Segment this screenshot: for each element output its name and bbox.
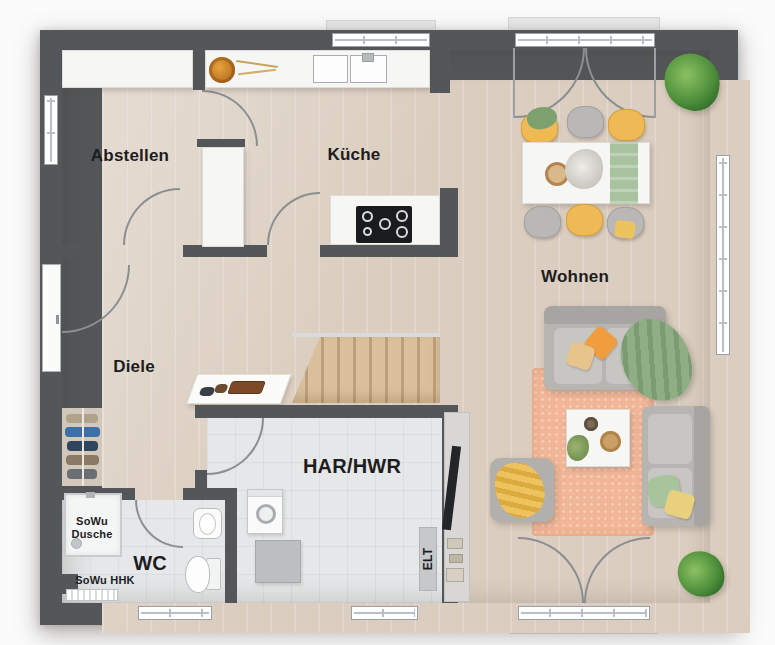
fruit-bowl	[209, 57, 235, 83]
stair-rail	[292, 333, 440, 337]
door-leaf	[654, 48, 656, 118]
wall-wc-top-right	[183, 488, 237, 500]
washer-door	[256, 504, 276, 524]
towel-radiator	[66, 589, 118, 601]
burner	[362, 211, 373, 222]
cooktop	[356, 206, 412, 243]
books	[447, 538, 463, 549]
annotation-electrical: ELT	[421, 548, 435, 570]
wall-kitchen-peninsula	[320, 245, 458, 257]
room-label-diele: Diele	[113, 357, 155, 377]
faucet	[362, 53, 374, 62]
washbasin-bowl	[199, 513, 216, 535]
shoes	[198, 387, 215, 396]
washing-machine	[247, 489, 283, 534]
window-abstellen	[44, 95, 58, 165]
shoe-bench	[187, 374, 292, 404]
window-wohnen	[716, 155, 730, 355]
room-label-har-hwr: HAR/HWR	[303, 455, 401, 478]
washbasin	[193, 508, 222, 539]
window-kueche	[332, 33, 430, 47]
french-door-bottom	[518, 606, 650, 620]
sofa-backrest	[694, 406, 710, 526]
burner	[396, 226, 408, 238]
wardrobe	[62, 408, 104, 486]
annotation-shower: SoWu Dusche	[60, 515, 124, 540]
floor-plan: Abstellen Küche Wohnen Diele HAR/HWR WC …	[0, 0, 775, 645]
wall-kitchen-peninsula-side	[440, 188, 458, 257]
decor-flowers	[565, 149, 603, 189]
french-door-top	[515, 33, 655, 47]
books	[446, 568, 464, 582]
burner	[379, 218, 391, 230]
dining-chair	[567, 106, 604, 138]
washer-panel	[248, 490, 282, 497]
decor-vase	[584, 417, 598, 431]
chair-cushion	[614, 220, 636, 240]
shower-faucet	[86, 492, 95, 498]
window-wc	[138, 606, 212, 620]
front-door-handle	[56, 315, 59, 324]
wall-wc-har	[225, 500, 237, 603]
burner	[363, 227, 372, 236]
room-label-kueche: Küche	[328, 145, 381, 165]
wall-kueche-wohnen-stub	[430, 50, 450, 93]
decor-tray	[600, 431, 621, 452]
dryer-unit	[255, 540, 301, 583]
door-leaf	[513, 48, 515, 118]
dining-chair	[566, 204, 603, 236]
wall-abstellen-bottom	[62, 245, 80, 257]
books	[449, 554, 463, 563]
tall-cabinet	[202, 147, 244, 247]
sofa-cushion	[648, 414, 692, 464]
dining-chair	[524, 206, 561, 238]
annotation-towel-radiator: SoWu HHK	[65, 574, 145, 587]
table-runner	[610, 142, 638, 204]
burner	[396, 210, 408, 222]
wall-abstellen-kueche	[193, 50, 205, 90]
toilet	[185, 556, 210, 593]
wardrobe-rail	[82, 408, 84, 486]
bench	[227, 381, 266, 394]
window-har	[351, 606, 418, 620]
storage-shelf	[62, 50, 193, 88]
kitchen-sink-left	[313, 55, 348, 83]
room-label-wohnen: Wohnen	[541, 267, 609, 287]
room-label-wc: WC	[133, 552, 167, 575]
dining-chair	[608, 109, 645, 141]
room-label-abstellen: Abstellen	[91, 146, 169, 166]
shoes	[214, 384, 229, 393]
wall-har-top	[195, 405, 455, 418]
